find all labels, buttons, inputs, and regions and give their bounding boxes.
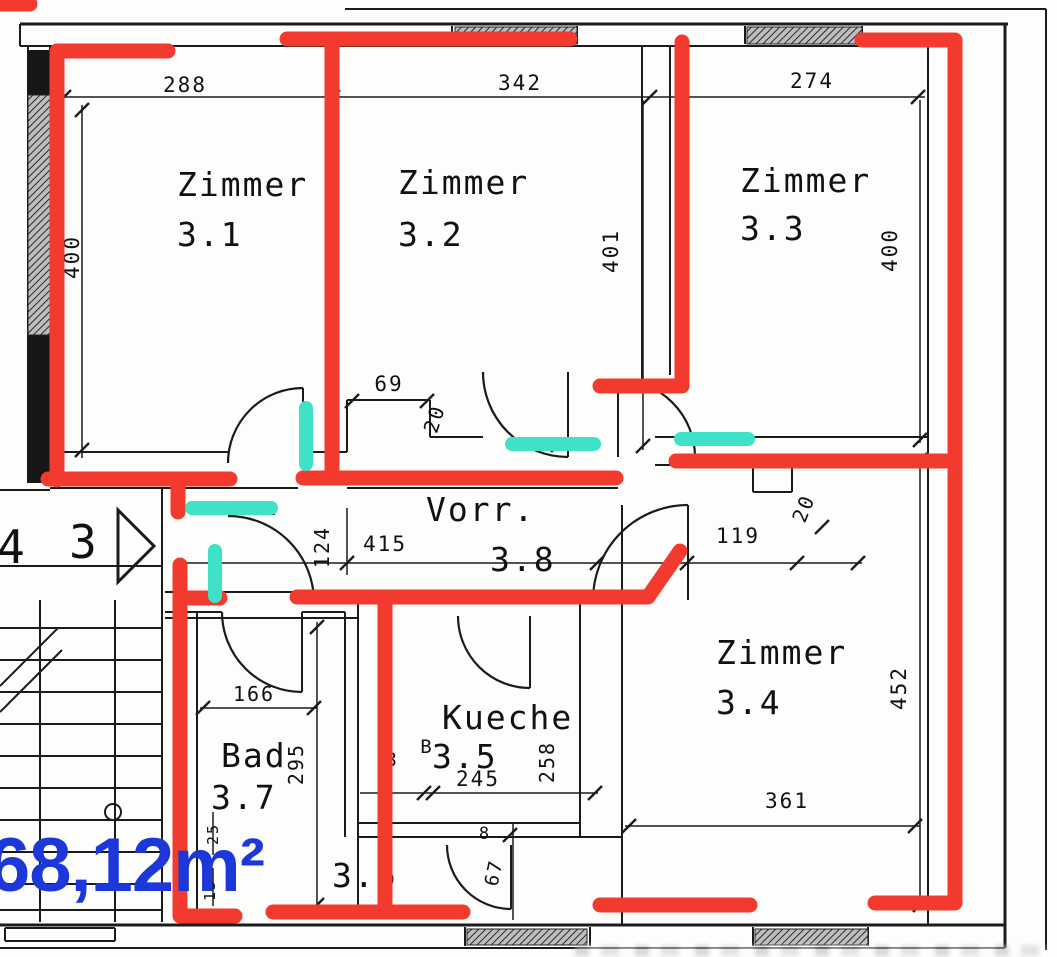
wall-fill (28, 50, 50, 95)
room-label-vorraum-3-8: Vorr. (426, 490, 535, 529)
dimension-label: 124 (310, 526, 334, 568)
area-measurement-label: 68,12m² (0, 822, 264, 909)
dimension-label: 69 (374, 372, 403, 396)
room-number-bad-3-7: 3.7 (211, 778, 277, 817)
room-number-zimmer-3-2: 3.2 (398, 215, 464, 254)
door-arc (228, 388, 303, 463)
window-hatch (755, 929, 868, 945)
dimension-label: 119 (716, 524, 760, 548)
dimension-label: B (420, 736, 433, 758)
dimension-label: 295 (284, 743, 308, 785)
floorplan-screenshot: { "colors": { "red": "#f23a2e", "teal": … (0, 0, 1057, 957)
window-hatch (747, 27, 862, 44)
dimension-label: 452 (887, 666, 911, 710)
stair-direction-triangle (118, 510, 154, 582)
room-number-zimmer-3-1: 3.1 (177, 215, 243, 254)
dimension-label: 20 (787, 491, 820, 526)
room-number-zimmer-3-4: 3.4 (716, 683, 782, 722)
dimension-label: 415 (363, 532, 407, 556)
dimension-label: 67 (481, 857, 508, 888)
dim-tick (815, 520, 829, 534)
illegible-scan-marks (575, 945, 1045, 956)
dimension-label: 166 (233, 682, 275, 706)
window-hatch (467, 929, 587, 945)
wall-line (0, 628, 58, 686)
stair-post-circle (105, 804, 121, 820)
dim-tick (503, 828, 517, 842)
room-label-kueche-3-5: Kueche (442, 698, 573, 737)
door-swing-arcs (222, 372, 695, 909)
dimension-label: 288 (163, 73, 207, 97)
room-number-zimmer-3-3: 3.3 (740, 209, 806, 248)
dimension-label: 3 (69, 515, 99, 569)
dimension-label: 258 (535, 741, 559, 783)
wall-fill (28, 335, 50, 483)
door-arc (228, 516, 314, 602)
door-arc (222, 612, 302, 692)
dimension-label: 361 (765, 789, 809, 813)
dimension-label: 274 (790, 69, 834, 93)
room-label-zimmer-3-1: Zimmer (177, 165, 308, 204)
dimension-label: 4 (0, 520, 27, 574)
dimension-label: 20 (419, 402, 451, 436)
dimension-label: 245 (456, 767, 500, 791)
dimension-label: 342 (498, 71, 542, 95)
room-label-zimmer-3-3: Zimmer (740, 161, 871, 200)
red-annotation (862, 40, 955, 903)
dimension-label: 8 (479, 824, 491, 844)
floorplan-canvas: Zimmer3.1Zimmer3.2Zimmer3.3Zimmer3.4Vorr… (0, 0, 1057, 957)
dimension-label: 401 (599, 229, 623, 273)
room-number-vorraum-3-8: 3.8 (490, 540, 556, 579)
door-arc (458, 616, 530, 688)
room-label-bad-3-7: Bad (221, 736, 287, 775)
dimension-label: 400 (878, 228, 902, 272)
room-label-zimmer-3-2: Zimmer (398, 163, 529, 202)
window-hatch (28, 95, 50, 335)
room-label-zimmer-3-4: Zimmer (716, 633, 847, 672)
